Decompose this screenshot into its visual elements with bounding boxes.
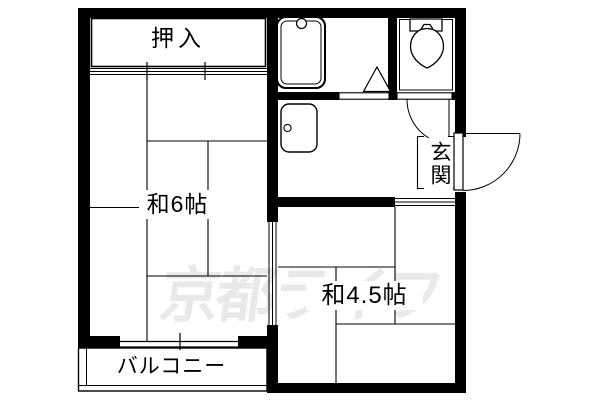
entrance-door-swing-arc <box>463 134 520 191</box>
japanese-room-4-5-label: 和4.5帖 <box>306 281 423 310</box>
floorplan-drawing <box>0 0 600 400</box>
balcony-label: バルコニー <box>111 353 232 379</box>
bathroom-door <box>339 93 389 99</box>
entrance-door-leaf <box>454 133 463 190</box>
hall-sliding-door <box>395 199 455 206</box>
room-divider-sliding-door <box>269 222 276 325</box>
bathtub-icon <box>277 17 325 88</box>
japanese-room-6-label: 和6帖 <box>139 190 216 219</box>
toilet-door <box>397 93 452 99</box>
bathroom-door-triangle-icon <box>364 67 391 92</box>
floorplan-canvas: 京都ライフ <box>0 0 600 400</box>
closet-label: 押入 <box>146 24 210 53</box>
toilet-icon <box>410 19 444 68</box>
genkan-label: 玄関 <box>426 138 453 190</box>
kitchen-sink-icon <box>281 104 317 152</box>
